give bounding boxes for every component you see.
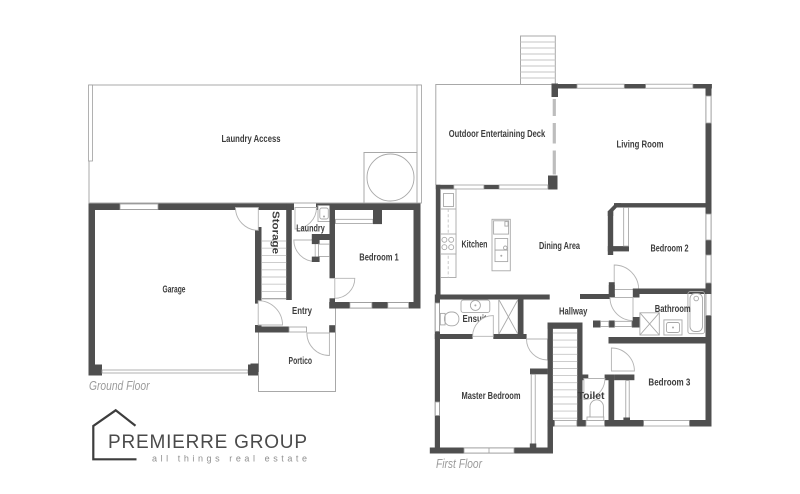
svg-text:Kitchen: Kitchen [462,239,488,250]
svg-text:Hallway: Hallway [559,306,588,317]
svg-text:PREMIERRE GROUP: PREMIERRE GROUP [108,432,307,453]
svg-text:Entry: Entry [292,306,312,317]
svg-text:Bedroom 2: Bedroom 2 [651,244,689,255]
svg-text:Ground Floor: Ground Floor [89,378,150,393]
svg-text:Laundry Access: Laundry Access [222,134,281,145]
svg-text:Dining Area: Dining Area [539,241,580,252]
svg-text:Bathroom: Bathroom [655,304,691,315]
svg-text:Living Room: Living Room [617,140,664,151]
svg-text:Portico: Portico [289,356,313,367]
svg-text:Garage: Garage [163,285,186,296]
svg-text:Storage: Storage [270,211,281,255]
svg-text:Bedroom 1: Bedroom 1 [359,252,399,263]
svg-text:First Floor: First Floor [436,456,483,471]
svg-text:Toilet: Toilet [578,391,606,402]
svg-text:Outdoor Entertaining Deck: Outdoor Entertaining Deck [449,129,546,140]
svg-text:Laundry: Laundry [296,224,325,235]
svg-text:Master Bedroom: Master Bedroom [462,391,521,402]
svg-text:Bedroom 3: Bedroom 3 [648,377,690,388]
